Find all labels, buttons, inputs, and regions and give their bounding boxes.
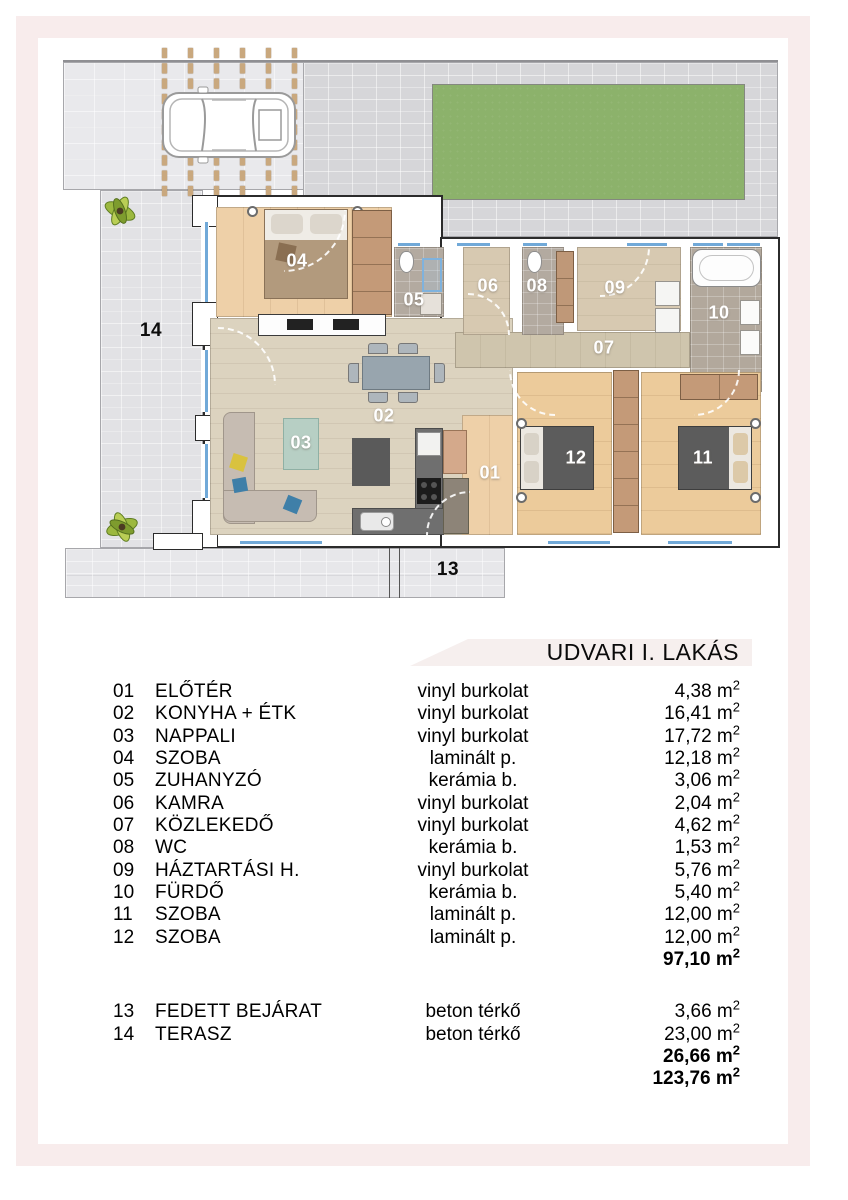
table-row: 10FÜRDŐkerámia b.5,40 m2 [113, 882, 740, 904]
chair-icon [368, 343, 388, 354]
table-row: 13FEDETT BEJÁRATbeton térkő3,66 m2 [113, 1001, 740, 1023]
room-label-13: 13 [437, 559, 459, 581]
bathtub-icon [692, 249, 761, 287]
room-name: KAMRA [155, 793, 378, 815]
walk-divider-line [389, 548, 390, 598]
table-row-outdoor-subtotal: 26,66 m2 [113, 1046, 740, 1068]
table-row: 11SZOBAlaminált p.12,00 m2 [113, 904, 740, 926]
outdoor-rows: 13FEDETT BEJÁRATbeton térkő3,66 m214TERA… [113, 1001, 740, 1046]
window-icon [523, 239, 547, 247]
pillow [733, 433, 748, 455]
title-banner: UDVARI I. LAKÁS [410, 639, 752, 666]
room-number: 03 [113, 726, 155, 748]
window-icon [693, 239, 723, 247]
table-row: 06KAMRAvinyl burkolat2,04 m2 [113, 793, 740, 815]
room-area: 4,38 m2 [568, 681, 740, 703]
room-number: 10 [113, 882, 155, 904]
walk-divider-line2 [399, 548, 400, 598]
room-label-01: 01 [479, 463, 500, 484]
room-label-07: 07 [593, 338, 614, 359]
room-area: 3,06 m2 [568, 770, 740, 792]
room-name: FEDETT BEJÁRAT [155, 1001, 378, 1023]
pillow [733, 461, 748, 483]
room-material: kerámia b. [378, 837, 568, 859]
terrace-step [153, 533, 203, 550]
room-number: 07 [113, 815, 155, 837]
area-table: 01ELŐTÉRvinyl burkolat4,38 m202KONYHA + … [113, 681, 740, 1091]
table-row: 07KÖZLEKEDŐvinyl burkolat4,62 m2 [113, 815, 740, 837]
room-name: ELŐTÉR [155, 681, 378, 703]
table-row: 09HÁZTARTÁSI H.vinyl burkolat5,76 m2 [113, 860, 740, 882]
room-label-11: 11 [693, 448, 713, 469]
room-area: 12,18 m2 [568, 748, 740, 770]
room-corridor-floor [455, 332, 690, 368]
dining-table-icon [362, 356, 430, 390]
room-material: kerámia b. [378, 770, 568, 792]
room-number: 12 [113, 927, 155, 949]
window-icon [548, 537, 610, 545]
room-name: NAPPALI [155, 726, 378, 748]
room-name: SZOBA [155, 904, 378, 926]
kitchen-sink-icon [360, 512, 394, 531]
pillow [524, 461, 539, 483]
room-number: 09 [113, 860, 155, 882]
room-area: 12,00 m2 [568, 927, 740, 949]
room-area: 4,62 m2 [568, 815, 740, 837]
car-icon [160, 86, 298, 164]
burner [431, 494, 437, 500]
speaker-icon [333, 319, 359, 330]
window-icon [201, 350, 209, 412]
room-material: vinyl burkolat [378, 860, 568, 882]
room-material: vinyl burkolat [378, 793, 568, 815]
room-name: ZUHANYZÓ [155, 770, 378, 792]
room-number: 13 [113, 1001, 155, 1023]
room-area: 12,00 m2 [568, 904, 740, 926]
room-label-03: 03 [290, 433, 311, 454]
sconce-icon [750, 418, 761, 429]
page-title: UDVARI I. LAKÁS [547, 639, 739, 666]
floor-plan: 01 02 03 04 05 06 07 08 09 10 11 12 13 1… [0, 0, 848, 620]
grand-total: 123,76 m2 [568, 1068, 740, 1090]
table-row: 12SZOBAlaminált p.12,00 m2 [113, 927, 740, 949]
room-number: 02 [113, 703, 155, 725]
room-material: kerámia b. [378, 882, 568, 904]
table-row: 03NAPPALIvinyl burkolat17,72 m2 [113, 726, 740, 748]
window-icon [201, 444, 209, 498]
sconce-icon [516, 492, 527, 503]
room-material: vinyl burkolat [378, 681, 568, 703]
window-icon [627, 239, 667, 247]
room-name: SZOBA [155, 927, 378, 949]
room-area: 2,04 m2 [568, 793, 740, 815]
window-icon [240, 537, 322, 545]
window-icon [457, 239, 490, 247]
room-name: KONYHA + ÉTK [155, 703, 378, 725]
room-number: 14 [113, 1024, 155, 1046]
wardrobe-icon [613, 370, 639, 533]
room-area: 23,00 m2 [568, 1024, 740, 1046]
room-label-09: 09 [604, 278, 625, 299]
wardrobe-icon [352, 210, 392, 315]
plant-icon [98, 504, 146, 550]
interior-total: 97,10 m2 [568, 949, 740, 971]
chair-icon [348, 363, 359, 383]
room-label-02: 02 [373, 406, 394, 427]
pillow [232, 477, 248, 493]
room-area: 17,72 m2 [568, 726, 740, 748]
chair-icon [368, 392, 388, 403]
hall-cabinet-icon [556, 251, 574, 323]
fridge-icon [417, 432, 441, 456]
room-material: laminált p. [378, 904, 568, 926]
plant-icon [96, 188, 144, 234]
room-area: 5,76 m2 [568, 860, 740, 882]
room-area: 5,40 m2 [568, 882, 740, 904]
bed-icon [678, 426, 752, 490]
burner [431, 482, 437, 488]
room-number: 08 [113, 837, 155, 859]
table-row: 01ELŐTÉRvinyl burkolat4,38 m2 [113, 681, 740, 703]
tv-icon [287, 319, 313, 330]
room-label-06: 06 [477, 276, 498, 297]
room-material: laminált p. [378, 748, 568, 770]
room-area: 3,66 m2 [568, 1001, 740, 1023]
table-row: 14TERASZbeton térkő23,00 m2 [113, 1024, 740, 1046]
interior-rows: 01ELŐTÉRvinyl burkolat4,38 m202KONYHA + … [113, 681, 740, 949]
room-area: 16,41 m2 [568, 703, 740, 725]
room-label-05: 05 [403, 290, 424, 311]
media-console [258, 314, 386, 336]
room-name: HÁZTARTÁSI H. [155, 860, 378, 882]
tub-inner [699, 255, 754, 281]
table-row: 05ZUHANYZÓkerámia b.3,06 m2 [113, 770, 740, 792]
room-number: 04 [113, 748, 155, 770]
window-icon [668, 537, 732, 545]
room-label-08: 08 [526, 276, 547, 297]
room-label-10: 10 [708, 303, 729, 324]
chair-icon [434, 363, 445, 383]
window-icon [727, 239, 760, 247]
room-label-14: 14 [140, 320, 162, 342]
sconce-icon [516, 418, 527, 429]
table-row: 02KONYHA + ÉTKvinyl burkolat16,41 m2 [113, 703, 740, 725]
table-row: 04SZOBAlaminált p.12,18 m2 [113, 748, 740, 770]
room-material: beton térkő [378, 1001, 568, 1023]
chair-icon [398, 392, 418, 403]
room-name: SZOBA [155, 748, 378, 770]
table-row-subtotal: 97,10 m2 [113, 949, 740, 971]
sink-bowl [381, 517, 391, 527]
room-material: beton térkő [378, 1024, 568, 1046]
entry-cabinet-icon [443, 430, 467, 474]
table-row-grand-total: 123,76 m2 [113, 1068, 740, 1090]
chair-icon [398, 343, 418, 354]
outdoor-total: 26,66 m2 [568, 1046, 740, 1068]
sconce-icon [750, 492, 761, 503]
room-material: vinyl burkolat [378, 703, 568, 725]
pillow [524, 433, 539, 455]
terrace-paving [100, 190, 203, 548]
toilet-icon [527, 251, 542, 273]
room-name: KÖZLEKEDŐ [155, 815, 378, 837]
room-number: 06 [113, 793, 155, 815]
dryer-icon [655, 308, 680, 333]
room-name: WC [155, 837, 378, 859]
burner [421, 494, 427, 500]
room-label-04: 04 [286, 251, 307, 272]
sink-icon [740, 300, 760, 325]
room-number: 05 [113, 770, 155, 792]
brochure-page: { "title": "UDVARI I. LAKÁS", "plan": { … [0, 0, 848, 1200]
room-number: 01 [113, 681, 155, 703]
room-area: 1,53 m2 [568, 837, 740, 859]
room-name: FÜRDŐ [155, 882, 378, 904]
sofa-icon [223, 490, 317, 522]
burner [421, 482, 427, 488]
room-material: vinyl burkolat [378, 726, 568, 748]
window-icon [201, 222, 209, 302]
room-material: vinyl burkolat [378, 815, 568, 837]
coffee-table-icon [352, 438, 390, 486]
sconce-icon [247, 206, 258, 217]
room-name: TERASZ [155, 1024, 378, 1046]
sink-icon [740, 330, 760, 355]
stove-icon [417, 478, 441, 504]
room-material: laminált p. [378, 927, 568, 949]
lawn [432, 84, 745, 200]
window-icon [398, 239, 420, 247]
shower-glass-icon [422, 258, 442, 292]
toilet-icon [399, 251, 414, 273]
table-gap [113, 971, 740, 1001]
room-label-12: 12 [565, 448, 586, 469]
table-row: 08WCkerámia b.1,53 m2 [113, 837, 740, 859]
room-number: 11 [113, 904, 155, 926]
washer-icon [655, 281, 680, 306]
